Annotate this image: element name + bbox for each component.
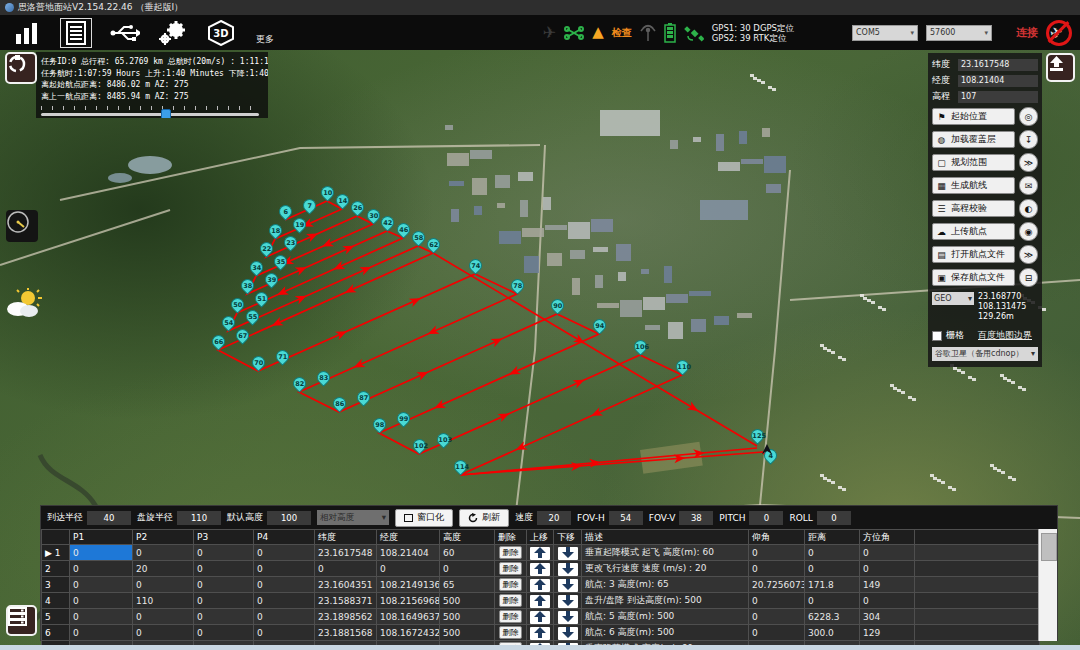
param-label: FOV-V <box>649 513 676 523</box>
battery-icon <box>664 23 676 43</box>
cell-lon[interactable]: 108.1649637 <box>377 609 440 625</box>
open-waypoint-file-button[interactable]: ▤打开航点文件 <box>932 246 1015 263</box>
cell-pitch[interactable]: 0 <box>749 561 805 577</box>
param-label: ROLL <box>789 513 812 523</box>
load-overlay-side-button[interactable]: ↧ <box>1019 130 1038 149</box>
cell-p1[interactable]: 0 <box>70 545 133 561</box>
cell-p2[interactable]: 0 <box>133 625 194 641</box>
cell-pitch[interactable]: 0 <box>749 625 805 641</box>
more-button[interactable]: 更多 <box>256 33 274 46</box>
save-waypoint-file-button[interactable]: ▣保存航点文件 <box>932 269 1015 286</box>
cell-lon[interactable]: 108.21404 <box>377 545 440 561</box>
compass-icon[interactable] <box>6 210 38 242</box>
move-down-button[interactable] <box>558 563 578 576</box>
delete-row-button[interactable]: 删除 <box>499 546 522 559</box>
cell-lat[interactable]: 23.1588371 <box>315 593 377 609</box>
window-title: 思洛普地面站V2.154.22.46 （垂起版Ⅰ） <box>18 0 183 15</box>
column-header-距离: 距离 <box>805 530 860 545</box>
connect-button[interactable]: 连接 <box>1016 25 1038 40</box>
lon-input[interactable]: 108.21404 <box>958 75 1038 87</box>
plan-area-label: 规划范围 <box>951 156 987 169</box>
cell-dist[interactable]: 0 <box>805 545 860 561</box>
cell-p2[interactable]: 0 <box>133 545 194 561</box>
cell-p4[interactable]: 0 <box>254 545 315 561</box>
slider-ticks <box>41 106 259 110</box>
toolbar-status-group: ✈ ▲ 检查 GPS1: 30 DGPS定位 GPS2: 39 RTK定位 CO… <box>543 20 1080 46</box>
load-overlay-icon: ◍ <box>936 135 947 145</box>
cell-lon[interactable]: 108.2156968 <box>377 593 440 609</box>
alt-label: 高程 <box>932 90 954 103</box>
load-overlay-label: 加载覆盖层 <box>951 133 996 146</box>
cursor-coordinates: 23.168770 108.131475 129.26m <box>978 292 1026 322</box>
param-input[interactable]: 0 <box>749 511 783 525</box>
param-input[interactable]: 0 <box>817 511 851 525</box>
plan-area-side-button[interactable]: ≫ <box>1019 153 1038 172</box>
baud-rate-select[interactable]: 57600▾ <box>926 25 992 41</box>
save-waypoint-file-side-button[interactable]: ⊟ <box>1019 268 1038 287</box>
height-mode-select[interactable]: 相对高度▾ <box>317 510 389 525</box>
cell-pitch[interactable]: 20.725607374379 <box>749 577 805 593</box>
table-row-2: 202000000删除更改飞行速度 速度 (m/s) : 20000 <box>42 561 1040 577</box>
slider-track <box>41 113 259 116</box>
panel-button-row: ☰高程校验◐ <box>932 199 1038 218</box>
panel-button-row: ▣保存航点文件⊟ <box>932 268 1038 287</box>
cell-p1[interactable]: 0 <box>70 577 133 593</box>
cell-alt[interactable]: 500 <box>440 609 495 625</box>
move-down-button[interactable] <box>558 579 578 592</box>
flight-log-icon[interactable] <box>60 18 92 48</box>
cell-alt[interactable]: 500 <box>440 625 495 641</box>
cell-p4[interactable]: 0 <box>254 577 315 593</box>
cell-p4[interactable]: 0 <box>254 609 315 625</box>
column-header-经度: 经度 <box>377 530 440 545</box>
cell-filler <box>915 609 1040 625</box>
mission-info-panel: 任务ID:0 总行程: 65.2769 km 总航时(20m/s) : 1:11… <box>36 52 268 118</box>
row-header[interactable]: ▶ 1 <box>42 545 70 561</box>
cell-p2[interactable]: 20 <box>133 561 194 577</box>
start-position-label: 起始位置 <box>951 110 987 123</box>
mission-info-line2: 任务航时:1:07:59 Hours 上升:1:40 Minutes 下降:1:… <box>41 68 263 80</box>
column-header <box>42 530 70 545</box>
cell-lat[interactable]: 23.1617548 <box>315 545 377 561</box>
cell-alt[interactable]: 65 <box>440 577 495 593</box>
planning-panel: 纬度23.1617548 经度108.21404 高程107 ⚑起始位置◎◍加载… <box>928 53 1042 367</box>
cell-p4[interactable]: 0 <box>254 625 315 641</box>
cell-p4[interactable]: 0 <box>254 561 315 577</box>
elevation-check-side-button[interactable]: ◐ <box>1019 199 1038 218</box>
delete-row-button[interactable]: 删除 <box>499 578 522 591</box>
window-mode-button[interactable]: 窗口化 <box>395 509 453 527</box>
panel-button-row: ▦生成航线✉ <box>932 176 1038 195</box>
cell-alt[interactable]: 60 <box>440 545 495 561</box>
column-header-下移: 下移 <box>554 530 582 545</box>
cell-p3[interactable]: 0 <box>194 593 254 609</box>
param-label: 到达半径 <box>47 511 83 524</box>
parameter-group-1: 到达半径40盘旋半径110默认高度100 <box>47 511 311 525</box>
column-header-P1: P1 <box>70 530 133 545</box>
cell-dist[interactable]: 171.8 <box>805 577 860 593</box>
planning-buttons: ⚑起始位置◎◍加载覆盖层↧▢规划范围≫▦生成航线✉☰高程校验◐☁上传航点◉▤打开… <box>932 107 1038 287</box>
cell-p3[interactable]: 0 <box>194 561 254 577</box>
cell-lat[interactable]: 0 <box>315 561 377 577</box>
row-header[interactable]: 4 <box>42 593 70 609</box>
drone-icon <box>564 26 584 40</box>
cell-az[interactable]: 0 <box>860 545 915 561</box>
window-titlebar: 思洛普地面站V2.154.22.46 （垂起版Ⅰ） <box>0 0 1080 15</box>
column-header-P4: P4 <box>254 530 315 545</box>
cell-desc[interactable]: 垂直起降模式 起飞 高度(m): 60 <box>582 545 749 561</box>
lat-label: 纬度 <box>932 58 954 71</box>
cell-dist[interactable]: 0 <box>805 593 860 609</box>
cell-lon[interactable]: 108.2149136 <box>377 577 440 593</box>
start-position-side-button[interactable]: ◎ <box>1019 107 1038 126</box>
param-label: 速度 <box>515 511 533 524</box>
cell-az[interactable]: 304 <box>860 609 915 625</box>
cell-filler <box>915 545 1040 561</box>
cell-filler <box>915 625 1040 641</box>
scrollbar-thumb[interactable] <box>1041 533 1057 561</box>
panel-button-row: ◍加载覆盖层↧ <box>932 130 1038 149</box>
row-header[interactable]: 2 <box>42 561 70 577</box>
window-icon <box>404 514 413 522</box>
row-header[interactable]: 3 <box>42 577 70 593</box>
cell-desc[interactable]: 更改飞行速度 速度 (m/s) : 20 <box>582 561 749 577</box>
cell-desc[interactable]: 盘升/盘降 到达高度(m): 500 <box>582 593 749 609</box>
column-header-上移: 上移 <box>527 530 554 545</box>
param-input[interactable]: 110 <box>177 511 221 525</box>
cell-filler <box>915 577 1040 593</box>
param-速度: 速度20 <box>515 511 571 525</box>
cell-desc[interactable]: 航点: 3 高度(m): 65 <box>582 577 749 593</box>
cell-p3[interactable]: 0 <box>194 545 254 561</box>
elevation-check-icon: ☰ <box>936 204 947 214</box>
cell-pitch[interactable]: 0 <box>749 609 805 625</box>
disconnected-plane-icon: ✈ <box>1046 20 1072 46</box>
open-waypoint-file-icon: ▤ <box>936 250 947 260</box>
3d-view-icon[interactable]: 3D <box>206 19 236 47</box>
cell-lat[interactable]: 23.1881568 <box>315 625 377 641</box>
cell-p1[interactable]: 0 <box>70 609 133 625</box>
mission-info-line3: 离起始航点距离: 8486.02 m AZ: 275 <box>41 79 263 91</box>
elevation-check-button[interactable]: ☰高程校验 <box>932 200 1015 217</box>
upload-waypoints-icon: ☁ <box>936 227 947 237</box>
row-header[interactable]: 5 <box>42 609 70 625</box>
weather-icon[interactable] <box>4 288 42 318</box>
column-header-描述: 描述 <box>582 530 749 545</box>
delete-row-button[interactable]: 删除 <box>499 626 522 639</box>
param-input[interactable]: 20 <box>537 511 571 525</box>
panel-button-row: ▤打开航点文件≫ <box>932 245 1038 264</box>
alt-input[interactable]: 107 <box>958 91 1038 103</box>
move-down-button[interactable] <box>558 627 578 640</box>
cell-p2[interactable]: 0 <box>133 577 194 593</box>
mission-info-line4: 离上一航点距离: 8485.94 m AZ: 275 <box>41 91 263 103</box>
upload-waypoints-button[interactable]: ☁上传航点 <box>932 223 1015 240</box>
refresh-icon <box>468 513 478 523</box>
cell-desc[interactable]: 航点: 5 高度(m): 500 <box>582 609 749 625</box>
check-button[interactable]: 检查 <box>612 26 632 40</box>
cell-p3[interactable]: 0 <box>194 609 254 625</box>
save-waypoint-file-icon: ▣ <box>936 273 947 283</box>
cell-pitch[interactable]: 0 <box>749 593 805 609</box>
cell-p4[interactable]: 0 <box>254 593 315 609</box>
baidu-boundary-link[interactable]: 百度地图边界 <box>978 329 1032 342</box>
cell-az[interactable]: 0 <box>860 561 915 577</box>
satellite-icon <box>684 24 704 42</box>
cell-lat[interactable]: 23.1898562 <box>315 609 377 625</box>
lat-input[interactable]: 23.1617548 <box>958 59 1038 71</box>
cell-lat[interactable]: 23.1604351 <box>315 577 377 593</box>
move-down-button[interactable] <box>558 595 578 608</box>
param-input[interactable]: 38 <box>679 511 713 525</box>
cell-alt[interactable]: 0 <box>440 561 495 577</box>
start-position-button[interactable]: ⚑起始位置 <box>932 108 1015 125</box>
cell-desc[interactable]: 航点: 6 高度(m): 500 <box>582 625 749 641</box>
warning-icon: ▲ <box>592 25 604 40</box>
home-drone-icon <box>761 444 771 454</box>
cell-az[interactable]: 129 <box>860 625 915 641</box>
settings-gears-icon[interactable] <box>158 19 188 47</box>
param-FOV-V: FOV-V38 <box>649 511 714 525</box>
generate-route-side-button[interactable]: ✉ <box>1019 176 1038 195</box>
column-header-纬度: 纬度 <box>315 530 377 545</box>
cell-p3[interactable]: 0 <box>194 625 254 641</box>
column-header-仰角: 仰角 <box>749 530 805 545</box>
panel-button-row: ☁上传航点◉ <box>932 222 1038 241</box>
slider-thumb[interactable] <box>161 109 171 118</box>
cell-p2[interactable]: 110 <box>133 593 194 609</box>
move-up-button[interactable] <box>530 595 550 608</box>
home-button[interactable] <box>1046 53 1075 82</box>
parameter-group-2: 速度20FOV-H54FOV-V38PITCH0ROLL0 <box>515 511 851 525</box>
toolbar-left-group: 3D 更多 <box>0 18 274 48</box>
antenna-icon <box>640 24 656 42</box>
gps-status: GPS1: 30 DGPS定位 GPS2: 39 RTK定位 <box>712 23 794 43</box>
table-vertical-scrollbar[interactable] <box>1038 529 1057 641</box>
row-header[interactable]: 6 <box>42 625 70 641</box>
upload-waypoints-side-button[interactable]: ◉ <box>1019 222 1038 241</box>
elevation-check-label: 高程校验 <box>951 202 987 215</box>
plan-area-icon: ▢ <box>936 158 947 168</box>
cell-lon[interactable]: 0 <box>377 561 440 577</box>
param-PITCH: PITCH0 <box>719 511 783 525</box>
move-up-button[interactable] <box>530 579 550 592</box>
column-header-方位角: 方位角 <box>860 530 915 545</box>
app-icon <box>5 3 14 12</box>
cell-p2[interactable]: 0 <box>133 609 194 625</box>
cell-p1[interactable]: 0 <box>70 625 133 641</box>
param-label: 盘旋半径 <box>137 511 173 524</box>
param-到达半径: 到达半径40 <box>47 511 131 525</box>
generate-route-button[interactable]: ▦生成航线 <box>932 177 1015 194</box>
cell-filler <box>915 593 1040 609</box>
param-label: FOV-H <box>577 513 605 523</box>
param-FOV-H: FOV-H54 <box>577 511 643 525</box>
load-overlay-button[interactable]: ◍加载覆盖层 <box>932 131 1015 148</box>
waypoint-list-button[interactable] <box>6 605 37 636</box>
open-waypoint-file-label: 打开航点文件 <box>951 248 1005 261</box>
param-默认高度: 默认高度100 <box>227 511 311 525</box>
cell-dist[interactable]: 0 <box>805 561 860 577</box>
generate-route-label: 生成航线 <box>951 179 987 192</box>
column-header-P3: P3 <box>194 530 254 545</box>
table-row-4: 401100023.1588371108.2156968500删除盘升/盘降 到… <box>42 593 1040 609</box>
airplane-icon: ✈ <box>543 23 556 42</box>
param-label: PITCH <box>719 513 745 523</box>
cell-p3[interactable]: 0 <box>194 577 254 593</box>
column-header <box>915 530 1040 545</box>
table-row-3: 3000023.1604351108.214913665删除航点: 3 高度(m… <box>42 577 1040 593</box>
waypoint-editor-panel: 到达半径40盘旋半径110默认高度100 相对高度▾ 窗口化 刷新 速度20FO… <box>40 505 1058 641</box>
svg-text:3D: 3D <box>213 28 228 39</box>
map-source-select[interactable]: 谷歌卫星（备用cdnop）▾ <box>932 347 1038 361</box>
cell-lon[interactable]: 108.1672432 <box>377 625 440 641</box>
cell-dist[interactable]: 6228.3 <box>805 609 860 625</box>
table-row-1: ▶ 1000023.1617548108.2140460删除垂直起降模式 起飞 … <box>42 545 1040 561</box>
waypoint-grid-wrap: P1P2P3P4纬度经度高度删除上移下移描述仰角距离方位角▶ 1000023.1… <box>41 529 1057 641</box>
move-down-button[interactable] <box>558 547 578 560</box>
cell-alt[interactable]: 500 <box>440 593 495 609</box>
column-header-高度: 高度 <box>440 530 495 545</box>
panel-button-row: ▢规划范围≫ <box>932 153 1038 172</box>
mission-refresh-button[interactable] <box>5 52 37 84</box>
open-waypoint-file-side-button[interactable]: ≫ <box>1019 245 1038 264</box>
param-input[interactable]: 40 <box>87 511 131 525</box>
delete-row-button[interactable]: 删除 <box>499 562 522 575</box>
usb-icon[interactable] <box>110 19 140 47</box>
move-up-button[interactable] <box>530 547 550 560</box>
taskbar-edge <box>0 645 1080 650</box>
cell-az[interactable]: 149 <box>860 577 915 593</box>
move-down-button[interactable] <box>558 611 578 624</box>
param-input[interactable]: 100 <box>267 511 311 525</box>
param-ROLL: ROLL0 <box>789 511 850 525</box>
cell-filler <box>915 561 1040 577</box>
table-row-6: 6000023.1881568108.1672432500删除航点: 6 高度(… <box>42 625 1040 641</box>
upload-waypoints-label: 上传航点 <box>951 225 987 238</box>
mission-progress-slider[interactable] <box>41 106 263 118</box>
column-header-删除: 删除 <box>495 530 527 545</box>
signal-bars-icon[interactable] <box>12 19 42 47</box>
com-port-select[interactable]: COM5▾ <box>852 25 918 41</box>
move-up-button[interactable] <box>530 627 550 640</box>
start-position-icon: ⚑ <box>936 112 947 122</box>
panel-button-row: ⚑起始位置◎ <box>932 107 1038 126</box>
cell-az[interactable]: 0 <box>860 593 915 609</box>
move-up-button[interactable] <box>530 563 550 576</box>
lon-label: 经度 <box>932 74 954 87</box>
refresh-button[interactable]: 刷新 <box>459 509 509 527</box>
param-label: 默认高度 <box>227 511 263 524</box>
column-header-P2: P2 <box>133 530 194 545</box>
waypoint-table: P1P2P3P4纬度经度高度删除上移下移描述仰角距离方位角▶ 1000023.1… <box>41 529 1040 650</box>
mission-info-line1: 任务ID:0 总行程: 65.2769 km 总航时(20m/s) : 1:11… <box>41 56 263 68</box>
grid-label: 栅格 <box>946 329 964 342</box>
delete-row-button[interactable]: 删除 <box>499 594 522 607</box>
table-row-5: 5000023.1898562108.1649637500删除航点: 5 高度(… <box>42 609 1040 625</box>
cell-pitch[interactable]: 0 <box>749 545 805 561</box>
parameter-bar: 到达半径40盘旋半径110默认高度100 相对高度▾ 窗口化 刷新 速度20FO… <box>41 506 1057 529</box>
geo-format-select[interactable]: GEO▾ <box>932 292 974 305</box>
cell-p1[interactable]: 0 <box>70 561 133 577</box>
cell-dist[interactable]: 300.0 <box>805 625 860 641</box>
grid-checkbox[interactable] <box>932 331 942 341</box>
main-toolbar: 3D 更多 ✈ ▲ 检查 GPS1: 30 DGPS定位 GPS2: 39 RT… <box>0 15 1080 50</box>
param-input[interactable]: 54 <box>609 511 643 525</box>
delete-row-button[interactable]: 删除 <box>499 610 522 623</box>
param-盘旋半径: 盘旋半径110 <box>137 511 221 525</box>
generate-route-icon: ▦ <box>936 181 947 191</box>
move-up-button[interactable] <box>530 611 550 624</box>
plan-area-button[interactable]: ▢规划范围 <box>932 154 1015 171</box>
save-waypoint-file-label: 保存航点文件 <box>951 271 1005 284</box>
cell-p1[interactable]: 0 <box>70 593 133 609</box>
